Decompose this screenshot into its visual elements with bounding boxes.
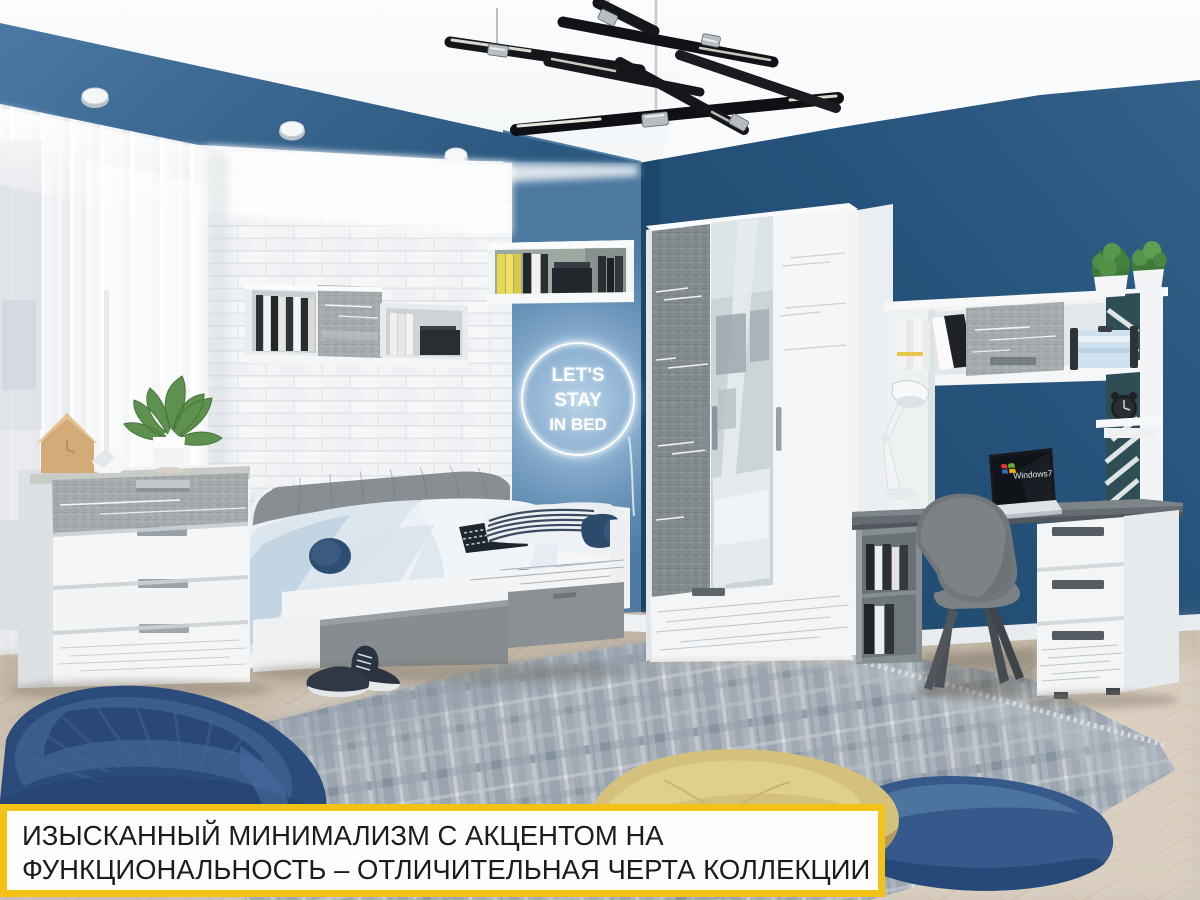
svg-text:ИЗЫСКАННЫЙ МИНИМАЛИЗМ С АКЦЕНТ: ИЗЫСКАННЫЙ МИНИМАЛИЗМ С АКЦЕНТОМ НА [22,820,664,851]
svg-text:LET'S: LET'S [551,365,604,386]
svg-text:IN BED: IN BED [549,415,607,434]
svg-text:ФУНКЦИОНАЛЬНОСТЬ – ОТЛИЧИТЕЛЬН: ФУНКЦИОНАЛЬНОСТЬ – ОТЛИЧИТЕЛЬНАЯ ЧЕРТА К… [22,854,870,885]
svg-text:STAY: STAY [554,390,602,411]
